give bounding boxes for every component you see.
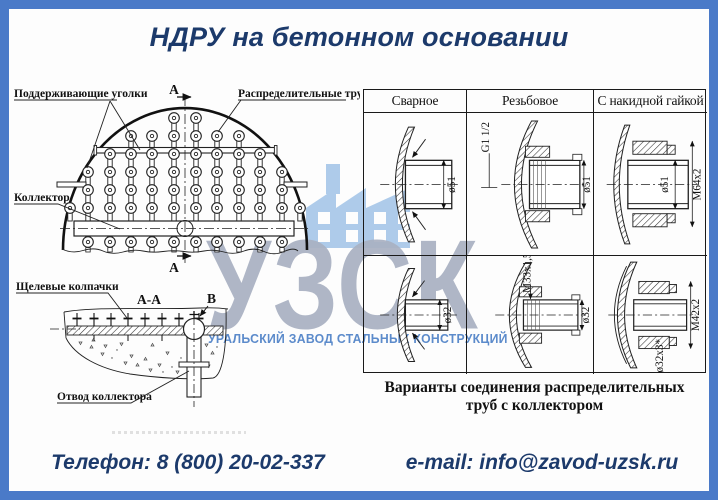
welded-bottom-cell: ø32	[364, 256, 467, 374]
caption-line-2: труб с коллектором	[363, 397, 706, 415]
phone-number: Телефон: 8 (800) 20-02-337	[38, 451, 338, 475]
dim-label: M33x1,5	[522, 256, 534, 293]
dim-label: ø32	[580, 307, 592, 324]
union-nut-32-drawing: M42x2 ø32x3*	[594, 256, 707, 374]
svg-text:В: В	[207, 291, 216, 306]
union-top-cell: ø51 M64x2	[594, 113, 707, 256]
dim-label: ø32	[442, 307, 454, 324]
concrete-outline	[66, 309, 226, 379]
svg-text:Отвод коллектора: Отвод коллектора	[57, 391, 152, 403]
dim-label: M64x2	[691, 169, 703, 201]
dim-label: ø32x3*	[654, 339, 666, 373]
svg-text:Распределительные трубы: Распределительные трубы	[238, 88, 360, 100]
svg-text:Щелевые колпачки: Щелевые колпачки	[16, 281, 119, 293]
support-angle-bar	[94, 146, 277, 156]
welded-32-drawing: ø32	[364, 256, 466, 374]
svg-text:Коллектор: Коллектор	[14, 192, 70, 204]
table-caption: Варианты соединения распределительных тр…	[363, 379, 706, 415]
page-title: НДРУ на бетонном основании	[0, 22, 718, 53]
connection-variants-table: Сварное Резьбовое С накидной гайкой ø51	[363, 89, 706, 373]
dim-label: ø51	[446, 176, 458, 193]
section-letter-top: А	[169, 82, 179, 97]
welded-top-cell: ø51	[364, 113, 467, 256]
threaded-32-drawing: M33x1,5 ø32	[467, 256, 593, 374]
detail-marker-b: В	[200, 291, 216, 316]
dim-label: G1 1/2	[480, 122, 492, 152]
section-title: А-А	[137, 292, 161, 307]
svg-text:Поддерживающие уголки: Поддерживающие уголки	[14, 88, 148, 100]
dim-label: ø51	[581, 176, 593, 193]
support-angle-stubs	[57, 182, 307, 187]
threaded-bottom-cell: M33x1,5 ø32	[467, 256, 594, 374]
threaded-top-cell: G1 1/2 ø51	[467, 113, 594, 256]
break-line	[62, 249, 298, 254]
threaded-51-drawing: G1 1/2 ø51	[467, 113, 593, 255]
label-distribution-pipes: Распределительные трубы	[218, 88, 360, 132]
welded-51-drawing: ø51	[364, 113, 466, 255]
table-header-threaded: Резьбовое	[467, 90, 594, 113]
section-aa-view: А-А В Щелевые колпачки Отвод коллектора	[16, 281, 228, 407]
section-marker-bottom: А	[169, 256, 191, 275]
flyer-page: НДРУ на бетонном основании УЗСК УРАЛЬСКИ…	[0, 0, 718, 500]
caption-line-1: Варианты соединения распределительных	[363, 379, 706, 397]
union-bottom-cell: M42x2 ø32x3*	[594, 256, 707, 374]
section-marker-top: А	[169, 82, 191, 97]
email-address: e-mail: info@zavod-uzsk.ru	[392, 451, 692, 475]
table-header-union-nut: С накидной гайкой	[594, 90, 707, 113]
dome-and-section-diagram: А А Поддерживающие уголки Распределитель…	[8, 82, 360, 444]
section-letter-bottom: А	[169, 260, 179, 275]
label-collector-outlet: Отвод коллектора	[57, 371, 189, 403]
table-header-welded: Сварное	[364, 90, 467, 113]
label-slot-caps: Щелевые колпачки	[16, 281, 127, 318]
dim-label: M42x2	[690, 299, 702, 331]
dim-label: ø51	[659, 176, 671, 193]
union-nut-51-drawing: ø51 M64x2	[594, 113, 707, 255]
